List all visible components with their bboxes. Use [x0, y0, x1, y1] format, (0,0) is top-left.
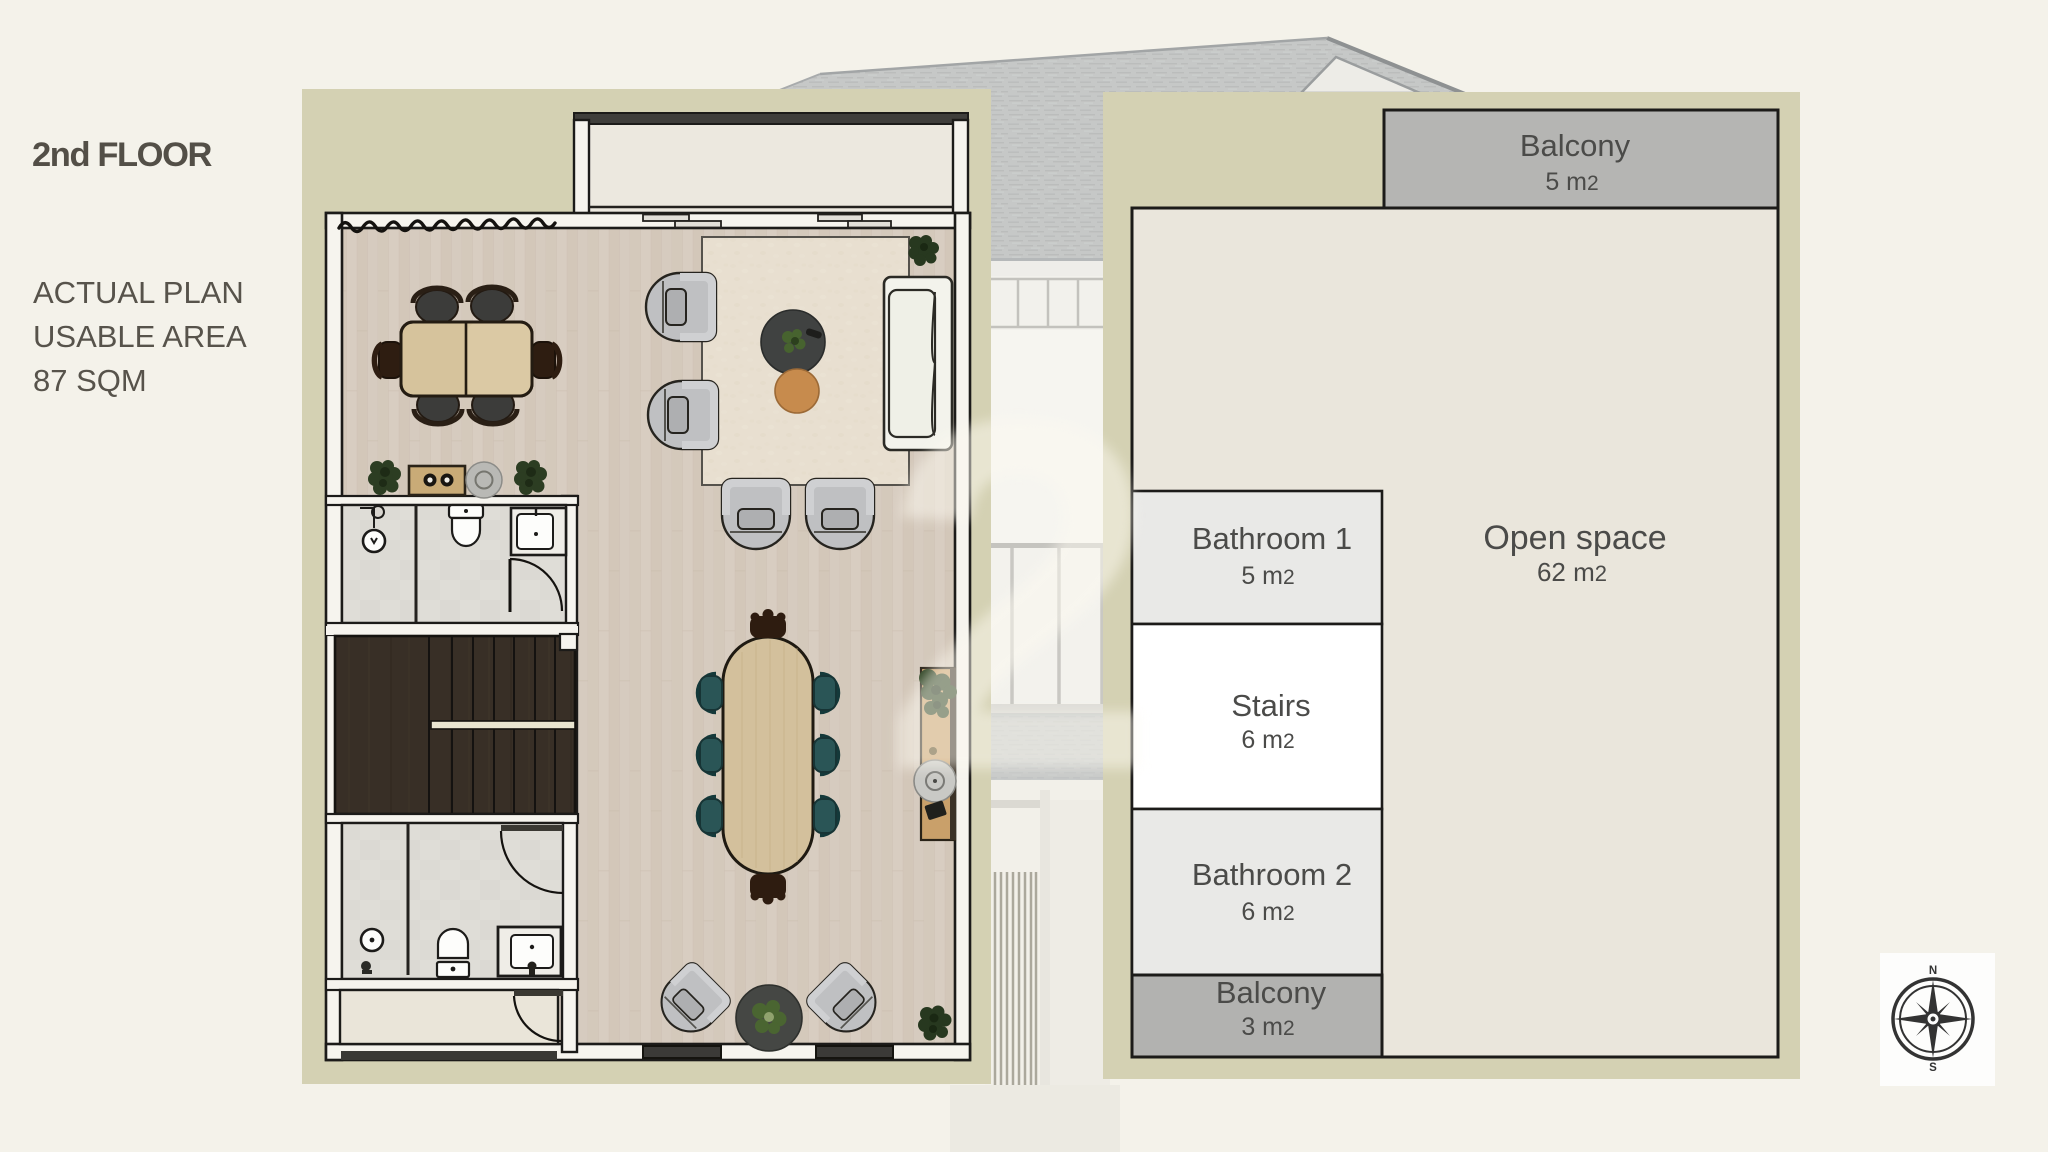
svg-text:5 m2: 5 m2 [1241, 562, 1294, 590]
svg-text:6 m2: 6 m2 [1241, 726, 1294, 754]
svg-text:87 SQM: 87 SQM [33, 363, 147, 398]
svg-text:2nd FLOOR: 2nd FLOOR [32, 136, 213, 174]
svg-text:ACTUAL PLAN: ACTUAL PLAN [33, 275, 244, 310]
svg-text:5 m2: 5 m2 [1545, 168, 1598, 196]
svg-text:Bathroom 1: Bathroom 1 [1192, 521, 1352, 556]
svg-text:Balcony: Balcony [1216, 975, 1327, 1010]
svg-text:Bathroom 2: Bathroom 2 [1192, 857, 1352, 892]
svg-text:S: S [1929, 1062, 1937, 1074]
svg-text:USABLE AREA: USABLE AREA [33, 319, 247, 354]
svg-text:3 m2: 3 m2 [1241, 1013, 1294, 1041]
svg-text:Balcony: Balcony [1520, 128, 1631, 163]
svg-text:Stairs: Stairs [1231, 688, 1310, 723]
svg-text:Open space: Open space [1483, 519, 1666, 557]
svg-text:6 m2: 6 m2 [1241, 898, 1294, 926]
svg-text:2: 2 [881, 315, 1159, 874]
svg-text:62 m2: 62 m2 [1537, 557, 1607, 587]
svg-text:N: N [1929, 965, 1937, 977]
